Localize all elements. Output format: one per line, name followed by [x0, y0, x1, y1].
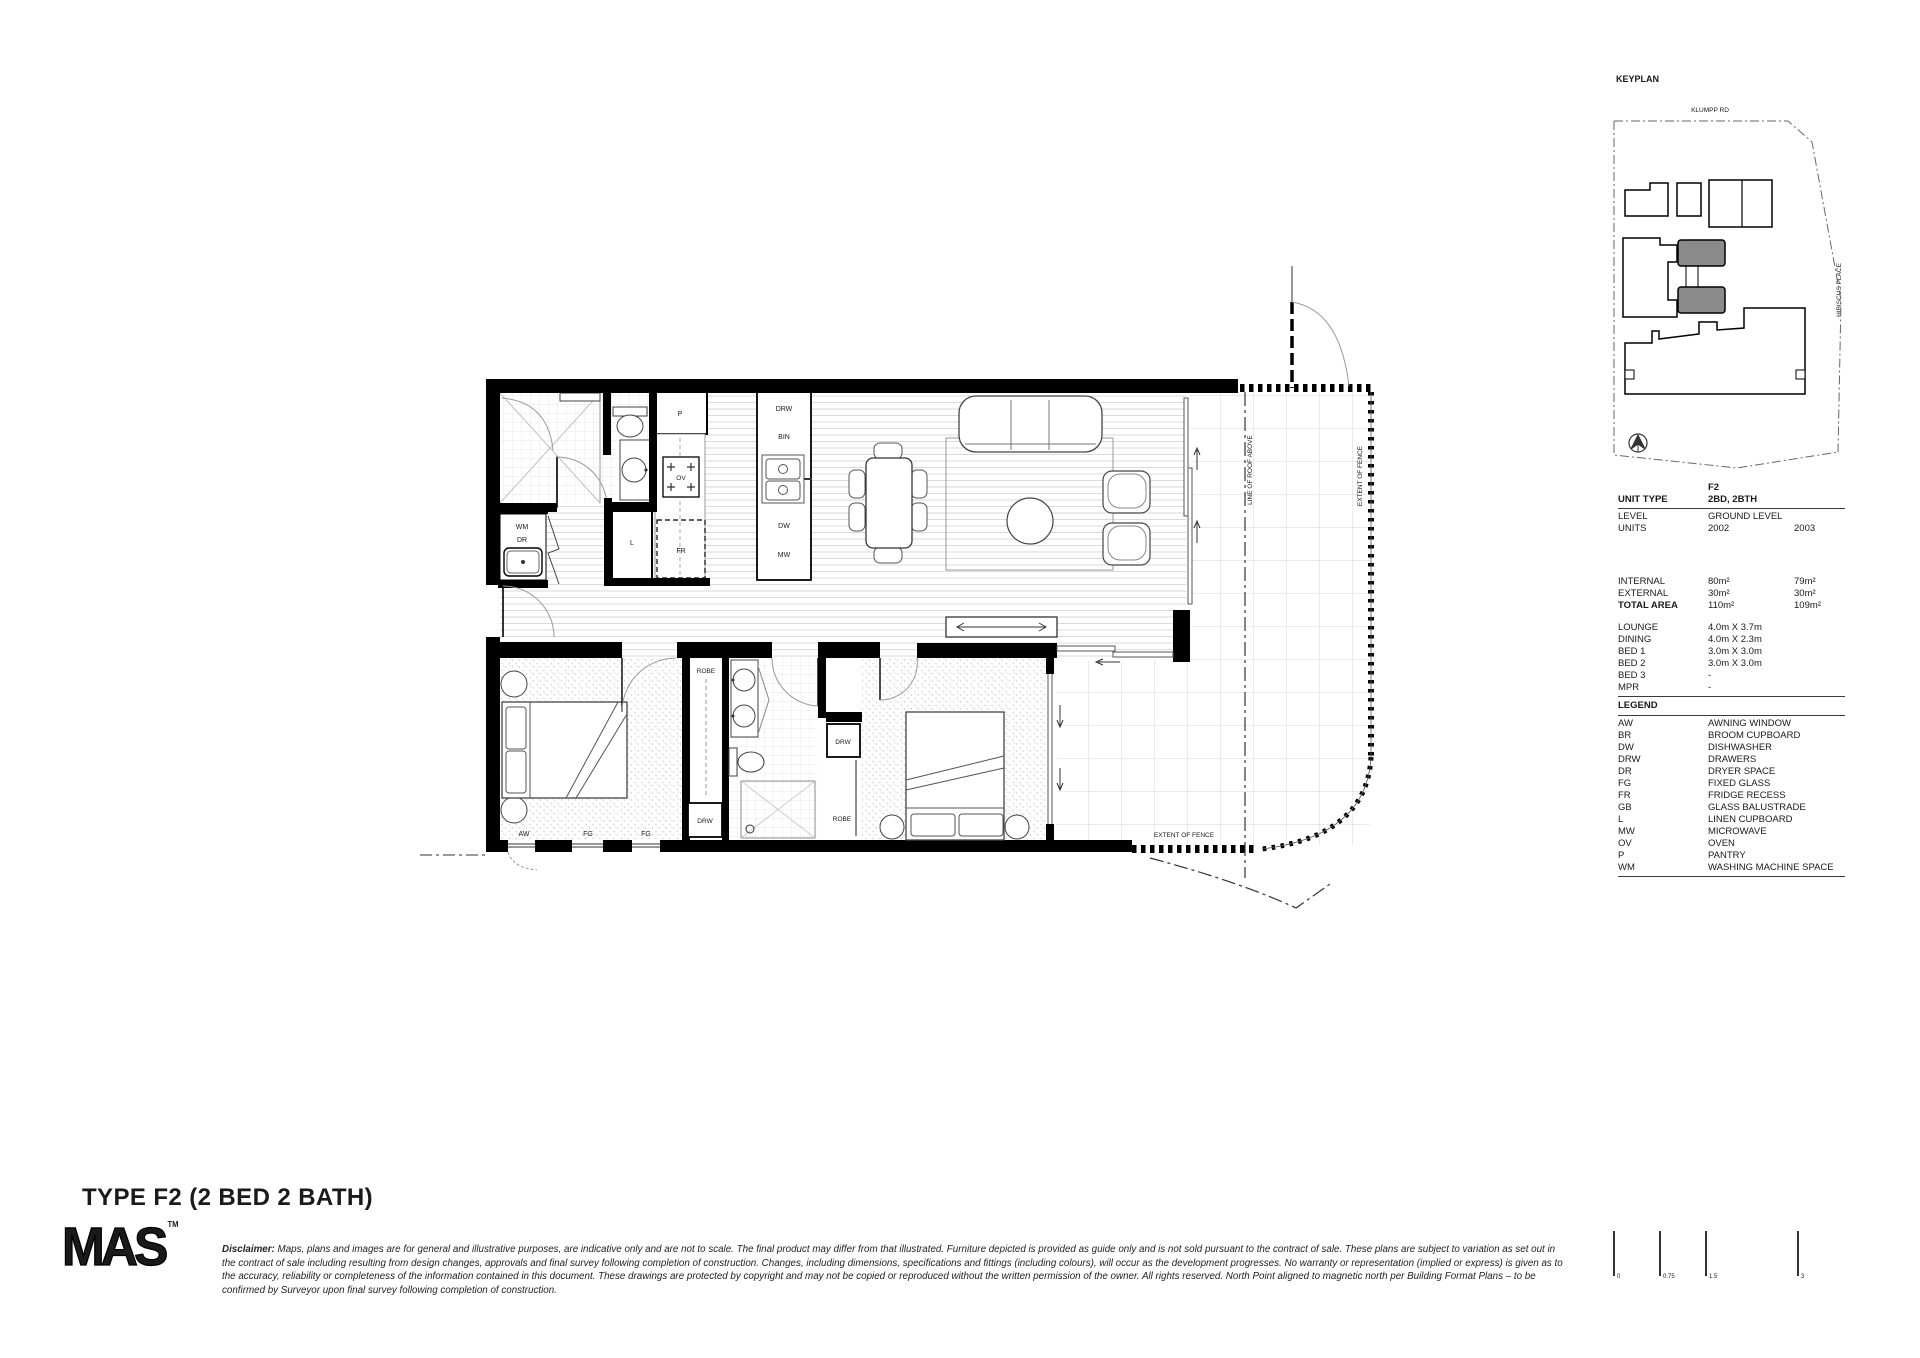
unit-info-table: F2 UNIT TYPE2BD, 2BTH LEVELGROUND LEVEL …: [1618, 482, 1845, 879]
drawers-label: DRW: [697, 818, 713, 825]
internal-area-1: 80m²: [1708, 576, 1794, 588]
divider: [1618, 876, 1845, 877]
units-label: UNITS: [1618, 523, 1708, 535]
dining-dims: 4.0m X 2.3m: [1708, 634, 1794, 646]
oven-label: OV: [676, 475, 686, 482]
trademark: TM: [167, 1220, 178, 1229]
north-arrow-icon: [1629, 434, 1647, 452]
gate-swing: [1292, 302, 1349, 386]
scale-tick-2: 1.5: [1709, 1274, 1718, 1280]
road-label-top: KLUMPP RD: [1691, 107, 1729, 114]
legend-item: LLINEN CUPBOARD: [1618, 814, 1845, 826]
unit-type-value: 2BD, 2BTH: [1708, 494, 1794, 506]
unit-number-1: 2002: [1708, 523, 1794, 535]
scale-bar-svg: 0 0.75 1.5 3: [1608, 1226, 1818, 1286]
legend-item: OVOVEN: [1618, 838, 1845, 850]
legend-item: FRFRIDGE RECESS: [1618, 790, 1845, 802]
legend-title: LEGEND: [1618, 699, 1658, 713]
bed3-dims: -: [1708, 670, 1794, 682]
page-title: TYPE F2 (2 BED 2 BATH): [82, 1184, 373, 1212]
lounge-dims: 4.0m X 3.7m: [1708, 622, 1794, 634]
highlighted-unit: [1678, 240, 1725, 266]
total-area-1: 110m²: [1708, 600, 1794, 612]
bed2-label: BED 2: [1618, 658, 1708, 670]
robe-1: ROBE DRW: [688, 668, 722, 837]
divider: [1618, 715, 1845, 716]
mpr-label: MPR: [1618, 682, 1708, 694]
mas-logo: MASTM: [62, 1220, 178, 1274]
unit-type-label: UNIT TYPE: [1618, 494, 1708, 506]
legend-list: AWAWNING WINDOW BRBROOM CUPBOARD DWDISHW…: [1618, 718, 1845, 874]
pantry-label: P: [678, 411, 683, 418]
internal-area-2: 79m²: [1794, 576, 1845, 588]
total-area-label: TOTAL AREA: [1618, 600, 1708, 612]
total-area-2: 109m²: [1794, 600, 1845, 612]
legend-item: MWMICROWAVE: [1618, 826, 1845, 838]
floor-plan-svg: WM DR P OV L FR: [410, 250, 1460, 930]
unit-code: F2: [1708, 482, 1794, 494]
legend-item: AWAWNING WINDOW: [1618, 718, 1845, 730]
dining-table-icon: [866, 458, 912, 548]
ensuite-toilet: [729, 748, 737, 776]
floor-plan: WM DR P OV L FR: [410, 250, 1460, 935]
legend-item: GBGLASS BALUSTRADE: [1618, 802, 1845, 814]
fridge-label: FR: [676, 548, 685, 555]
disclaimer-label: Disclaimer:: [222, 1244, 275, 1255]
microwave-label: MW: [778, 552, 791, 559]
legend-item: DWDISHWASHER: [1618, 742, 1845, 754]
keyplan-svg: KEYPLAN KLUMPP RD HIBISCUS PLACE: [1600, 58, 1850, 478]
linen-label: L: [630, 540, 634, 547]
kitchen-island: DRW BIN DW MW: [757, 392, 812, 580]
nightstand-icon: [880, 815, 904, 839]
fixed-glass-label: FG: [641, 831, 651, 838]
dining-label: DINING: [1618, 634, 1708, 646]
keyplan: KEYPLAN KLUMPP RD HIBISCUS PLACE: [1600, 58, 1850, 483]
robe-label: ROBE: [697, 668, 716, 675]
awning-window-label: AW: [518, 831, 529, 838]
scale-bar: 0 0.75 1.5 3: [1608, 1226, 1818, 1291]
fixed-glass-label: FG: [583, 831, 593, 838]
keyplan-buildings: [1623, 180, 1805, 394]
legend-item: PPANTRY: [1618, 850, 1845, 862]
shower-niche: [560, 393, 600, 401]
line-of-roof-label: LINE OF ROOF ABOVE: [1247, 434, 1254, 504]
bed1-label: BED 1: [1618, 646, 1708, 658]
scale-tick-1: 0.75: [1663, 1274, 1675, 1280]
legend-item: WMWASHING MACHINE SPACE: [1618, 862, 1845, 874]
external-area-2: 30m²: [1794, 588, 1845, 600]
nightstand-icon: [501, 671, 527, 697]
robe-label: ROBE: [833, 816, 852, 823]
bed1-dims: 3.0m X 3.0m: [1708, 646, 1794, 658]
external-label: EXTERNAL: [1618, 588, 1708, 600]
basin-icon: [622, 458, 646, 482]
legend-item: FGFIXED GLASS: [1618, 778, 1845, 790]
drawers-label: DRW: [776, 406, 793, 413]
disclaimer-text: Maps, plans and images are for general a…: [222, 1244, 1563, 1296]
bin-label: BIN: [778, 434, 790, 441]
scale-tick-3: 3: [1801, 1274, 1805, 1280]
robe-2: DRW ROBE: [827, 724, 860, 836]
scale-tick-0: 0: [1617, 1274, 1621, 1280]
lounge-label: LOUNGE: [1618, 622, 1708, 634]
mpr-dims: -: [1708, 682, 1794, 694]
divider: [1618, 508, 1845, 509]
coffee-table-icon: [1007, 498, 1053, 544]
toilet-icon: [617, 415, 643, 437]
extent-of-fence-label: EXTENT OF FENCE: [1357, 445, 1364, 506]
legend-item: BRBROOM CUPBOARD: [1618, 730, 1845, 742]
internal-label: INTERNAL: [1618, 576, 1708, 588]
nightstand-icon: [1005, 815, 1029, 839]
dr-label: DR: [517, 537, 527, 544]
disclaimer: Disclaimer: Maps, plans and images are f…: [222, 1243, 1570, 1297]
extent-of-fence-label: EXTENT OF FENCE: [1154, 832, 1215, 839]
floorplan-sheet: WM DR P OV L FR: [0, 0, 1920, 1358]
bed2-dims: 3.0m X 3.0m: [1708, 658, 1794, 670]
wm-label: WM: [516, 524, 529, 531]
level-label: LEVEL: [1618, 511, 1708, 523]
external-area-1: 30m²: [1708, 588, 1794, 600]
level-value: GROUND LEVEL: [1708, 511, 1794, 523]
keyplan-title: KEYPLAN: [1616, 74, 1659, 84]
nightstand-icon: [501, 797, 527, 823]
drawers-label: DRW: [835, 739, 851, 746]
bed3-label: BED 3: [1618, 670, 1708, 682]
road-label-right: HIBISCUS PLACE: [1836, 262, 1843, 316]
legend-item: DRWDRAWERS: [1618, 754, 1845, 766]
highlighted-unit: [1678, 287, 1725, 313]
divider: [1618, 696, 1845, 697]
legend-item: DRDRYER SPACE: [1618, 766, 1845, 778]
dishwasher-label: DW: [778, 523, 790, 530]
unit-number-2: 2003: [1794, 523, 1845, 535]
